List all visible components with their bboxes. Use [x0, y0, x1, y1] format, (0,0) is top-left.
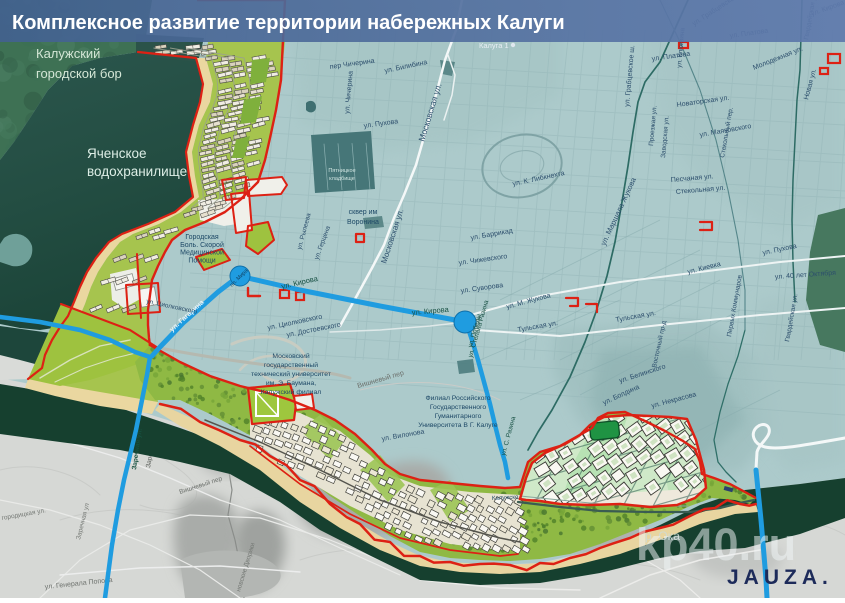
- svg-text:городской бор: городской бор: [36, 66, 122, 81]
- svg-text:Университета В Г. Калуге: Университета В Г. Калуге: [418, 422, 498, 429]
- svg-text:Государственного: Государственного: [430, 404, 487, 411]
- svg-text:водохранилище: водохранилище: [87, 164, 187, 179]
- svg-text:Помощи: Помощи: [188, 257, 215, 264]
- svg-text:Пятницкое: Пятницкое: [328, 168, 355, 174]
- svg-text:kp40.ru: kp40.ru: [636, 519, 796, 570]
- svg-text:Медицинской: Медицинской: [180, 249, 224, 257]
- svg-text:Городская: Городская: [185, 234, 219, 241]
- svg-text:Воронина: Воронина: [347, 219, 379, 226]
- svg-text:государственный: государственный: [264, 361, 318, 369]
- svg-text:Калужский филиал: Калужский филиал: [261, 388, 322, 396]
- svg-text:Московский: Московский: [272, 352, 309, 360]
- svg-text:кладбище: кладбище: [329, 176, 355, 182]
- svg-text:Яченское: Яченское: [87, 146, 147, 161]
- svg-text:Калужский: Калужский: [36, 46, 100, 61]
- svg-text:JAUZA.: JAUZA.: [727, 566, 833, 589]
- svg-text:технический университет: технический университет: [251, 370, 331, 378]
- svg-text:сквер им: сквер им: [349, 209, 378, 216]
- svg-text:Филиал Российского: Филиал Российского: [425, 394, 490, 402]
- svg-text:им. Э. Баумана,: им. Э. Баумана,: [266, 380, 316, 387]
- svg-text:Гуманитарного: Гуманитарного: [435, 413, 482, 420]
- svg-text:Калуга 1: Калуга 1: [479, 41, 509, 50]
- svg-text:Комплексное развитие территори: Комплексное развитие территории набережн…: [12, 12, 565, 34]
- svg-text:Боль. Скорой: Боль. Скорой: [180, 241, 224, 249]
